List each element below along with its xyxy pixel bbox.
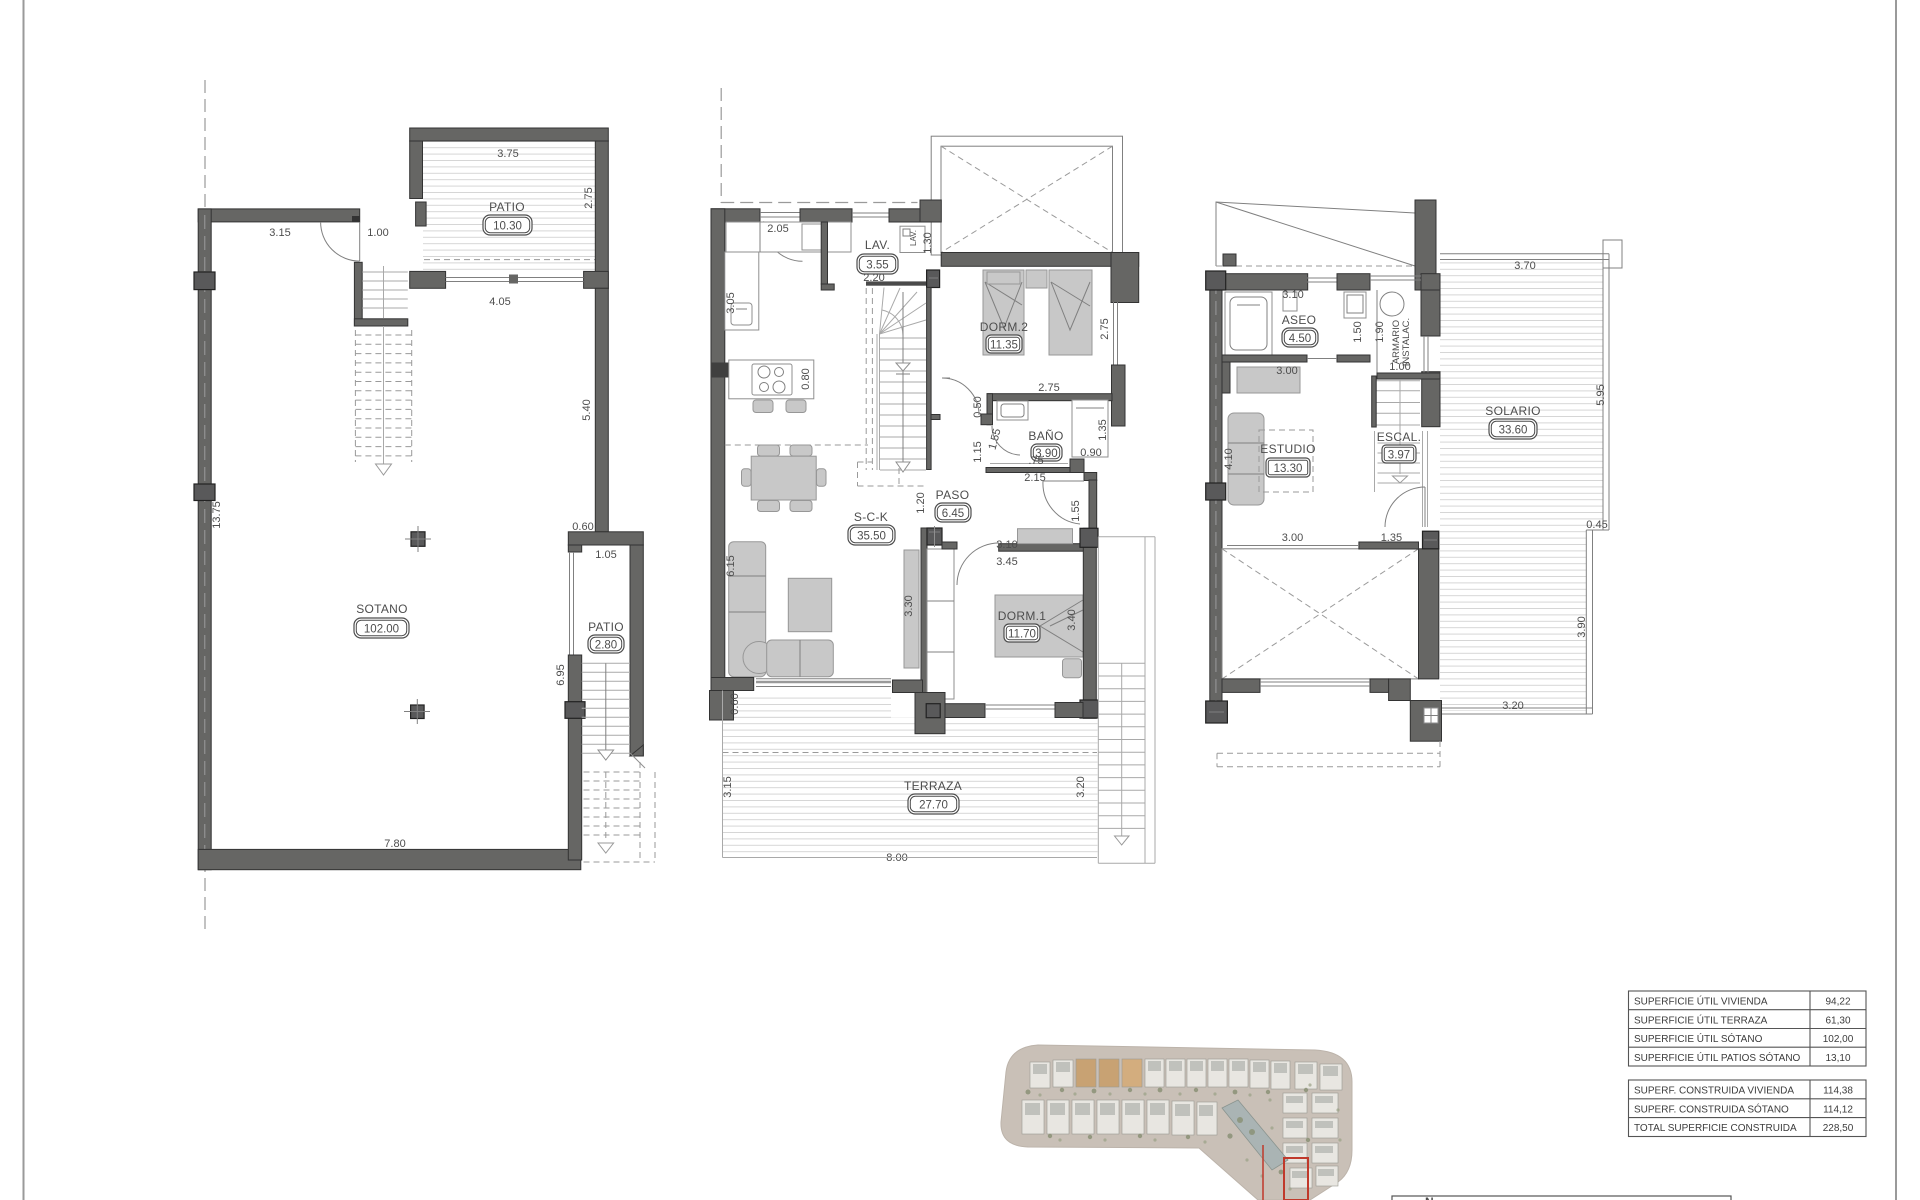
svg-text:PATIO: PATIO <box>489 200 525 214</box>
svg-text:SOTANO: SOTANO <box>356 602 408 616</box>
svg-text:0.60: 0.60 <box>572 521 593 533</box>
svg-text:61,30: 61,30 <box>1825 1015 1850 1026</box>
svg-text:.75: .75 <box>1028 455 1043 467</box>
svg-text:3.20: 3.20 <box>1502 700 1523 712</box>
svg-text:2.05: 2.05 <box>767 223 788 235</box>
svg-text:SUPERFICIE ÚTIL VIVIENDA: SUPERFICIE ÚTIL VIVIENDA <box>1634 995 1768 1008</box>
svg-text:3.45: 3.45 <box>996 556 1017 568</box>
svg-text:3.00: 3.00 <box>1276 365 1297 377</box>
svg-text:6.95: 6.95 <box>555 664 567 685</box>
svg-text:3.90: 3.90 <box>1576 616 1588 637</box>
svg-text:TERRAZA: TERRAZA <box>904 779 962 793</box>
svg-text:N: N <box>1425 1195 1434 1200</box>
svg-text:35.50: 35.50 <box>857 531 886 543</box>
svg-text:1.05: 1.05 <box>595 549 616 561</box>
svg-text:DORM.1: DORM.1 <box>998 609 1046 623</box>
svg-text:2.75: 2.75 <box>1038 382 1059 394</box>
svg-text:4.10: 4.10 <box>1223 448 1235 469</box>
svg-text:114,38: 114,38 <box>1823 1086 1853 1097</box>
svg-text:1.30: 1.30 <box>922 232 934 253</box>
svg-text:102.00: 102.00 <box>364 624 399 636</box>
svg-text:3.30: 3.30 <box>903 595 915 616</box>
svg-text:1.15: 1.15 <box>972 441 984 462</box>
svg-text:LAV.: LAV. <box>865 238 890 252</box>
svg-text:0.60: 0.60 <box>729 693 741 714</box>
svg-text:3.15: 3.15 <box>722 776 734 797</box>
svg-text:4.50: 4.50 <box>1289 333 1311 345</box>
svg-text:3.20: 3.20 <box>1075 776 1087 797</box>
svg-text:SUPERFICIE ÚTIL TERRAZA: SUPERFICIE ÚTIL TERRAZA <box>1634 1013 1768 1026</box>
svg-text:5.40: 5.40 <box>581 399 593 420</box>
svg-text:SUPERF. CONSTRUIDA SÓTANO: SUPERF. CONSTRUIDA SÓTANO <box>1634 1102 1789 1115</box>
svg-text:ESTUDIO: ESTUDIO <box>1260 442 1315 456</box>
svg-text:INSTALAC.: INSTALAC. <box>1401 318 1412 366</box>
svg-text:33.60: 33.60 <box>1499 425 1528 437</box>
svg-text:27.70: 27.70 <box>919 800 948 812</box>
svg-text:4.05: 4.05 <box>489 296 510 308</box>
svg-text:SUPERF. CONSTRUIDA VIVIENDA: SUPERF. CONSTRUIDA VIVIENDA <box>1634 1086 1794 1097</box>
svg-text:7.80: 7.80 <box>384 838 405 850</box>
svg-text:3.75: 3.75 <box>497 148 518 160</box>
svg-text:6.15: 6.15 <box>725 555 737 576</box>
svg-text:3.05: 3.05 <box>725 292 737 313</box>
svg-text:1.00: 1.00 <box>1389 361 1410 373</box>
svg-text:102,00: 102,00 <box>1823 1034 1854 1045</box>
svg-text:3.55: 3.55 <box>866 260 888 272</box>
svg-text:2.75: 2.75 <box>583 187 595 208</box>
svg-text:TOTAL SUPERFICIE CONSTRUIDA: TOTAL SUPERFICIE CONSTRUIDA <box>1634 1123 1797 1134</box>
svg-text:DORM.2: DORM.2 <box>980 320 1028 334</box>
svg-text:10.30: 10.30 <box>493 221 522 233</box>
svg-text:13,10: 13,10 <box>1825 1053 1850 1064</box>
svg-text:0.90: 0.90 <box>1080 447 1101 459</box>
svg-text:3.40: 3.40 <box>1066 609 1078 630</box>
svg-text:2.80: 2.80 <box>595 640 617 652</box>
svg-text:2.75: 2.75 <box>1099 318 1111 339</box>
svg-text:1.55: 1.55 <box>1070 500 1082 521</box>
svg-text:SUPERFICIE ÚTIL PATIOS SÓTANO: SUPERFICIE ÚTIL PATIOS SÓTANO <box>1634 1051 1801 1064</box>
svg-text:BAÑO: BAÑO <box>1028 429 1063 443</box>
svg-text:11.70: 11.70 <box>1008 629 1036 641</box>
svg-text:5.95: 5.95 <box>1595 384 1607 405</box>
svg-text:3.97: 3.97 <box>1388 450 1410 462</box>
svg-text:0.80: 0.80 <box>800 368 812 389</box>
svg-text:S-C-K: S-C-K <box>854 510 888 524</box>
svg-text:ESCAL.: ESCAL. <box>1377 430 1422 444</box>
svg-text:114,12: 114,12 <box>1823 1104 1853 1115</box>
svg-text:3.15: 3.15 <box>269 227 290 239</box>
svg-text:3.00: 3.00 <box>1282 532 1303 544</box>
svg-text:228,50: 228,50 <box>1823 1123 1854 1134</box>
svg-text:11.35: 11.35 <box>990 340 1018 352</box>
svg-text:PATIO: PATIO <box>588 620 624 634</box>
svg-text:1.50: 1.50 <box>1352 321 1364 342</box>
svg-text:SOLARIO: SOLARIO <box>1485 404 1540 418</box>
svg-text:3.10: 3.10 <box>1282 289 1303 301</box>
svg-text:1.00: 1.00 <box>367 227 388 239</box>
svg-text:SUPERFICIE ÚTIL SÓTANO: SUPERFICIE ÚTIL SÓTANO <box>1634 1032 1763 1045</box>
svg-text:PASO: PASO <box>936 488 970 502</box>
svg-text:1.20: 1.20 <box>915 492 927 513</box>
svg-text:13.30: 13.30 <box>1274 463 1303 475</box>
svg-text:94,22: 94,22 <box>1825 997 1850 1008</box>
svg-text:1.90: 1.90 <box>1374 321 1386 342</box>
svg-text:3.10: 3.10 <box>996 539 1017 551</box>
svg-text:LAV.: LAV. <box>909 230 918 246</box>
svg-text:6.45: 6.45 <box>942 508 964 520</box>
svg-text:0.45: 0.45 <box>1586 519 1607 531</box>
svg-text:ASEO: ASEO <box>1282 313 1317 327</box>
svg-text:3.70: 3.70 <box>1514 260 1535 272</box>
svg-text:1.35: 1.35 <box>1097 419 1109 440</box>
svg-text:13.75: 13.75 <box>211 501 223 529</box>
